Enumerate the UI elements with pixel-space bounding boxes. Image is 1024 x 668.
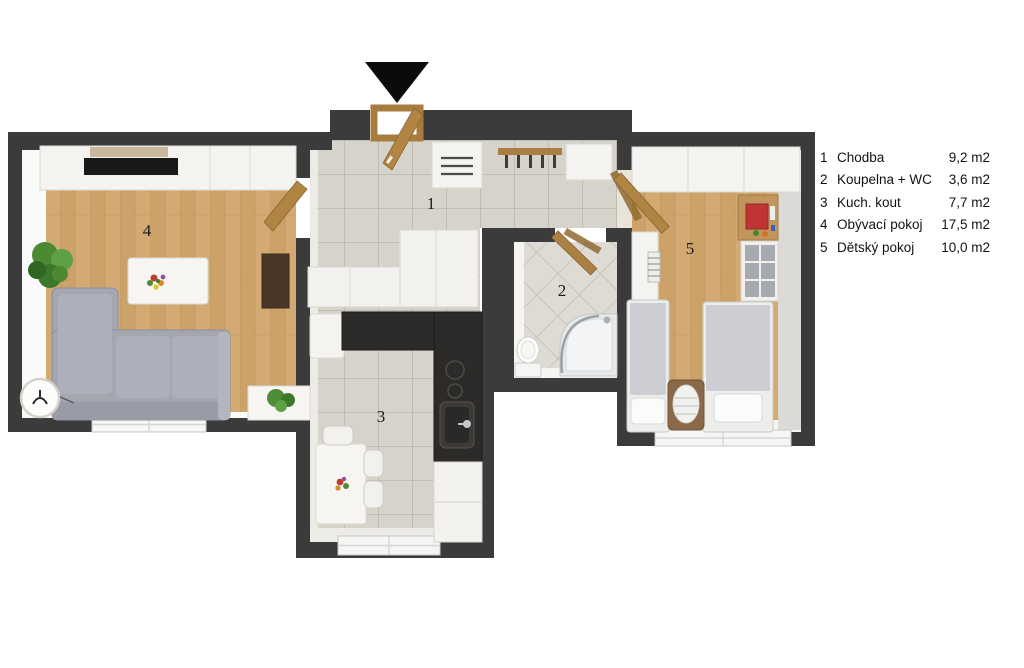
dining-chair <box>323 426 353 445</box>
dining-table <box>316 444 366 524</box>
coffee-table <box>128 258 208 304</box>
shelf-unit <box>741 241 778 301</box>
legend-room-name: Obývací pokoj <box>837 214 938 236</box>
side-table <box>248 386 310 420</box>
legend-room-name: Chodba <box>837 147 938 169</box>
legend: 1 Chodba 9,2 m2 2 Koupelna + WC 3,6 m2 3… <box>820 147 990 259</box>
room-label-3: 3 <box>377 407 386 427</box>
legend-room-area: 9,2 m2 <box>938 147 990 169</box>
desk <box>632 232 660 310</box>
hall-cabinet <box>566 144 612 180</box>
tv-deco <box>90 147 168 157</box>
legend-room-number: 1 <box>820 147 837 169</box>
legend-room-name: Kuch. kout <box>837 192 938 214</box>
legend-row: 4 Obývací pokoj 17,5 m2 <box>820 214 990 236</box>
legend-room-area: 17,5 m2 <box>938 214 990 236</box>
kitchen-cabinet-top <box>310 314 344 358</box>
room-label-2: 2 <box>558 281 567 301</box>
legend-row: 3 Kuch. kout 7,7 m2 <box>820 192 990 214</box>
entrance-arrow-icon <box>365 62 429 103</box>
legend-room-number: 4 <box>820 214 837 236</box>
dining-chair <box>364 450 383 477</box>
legend-row: 2 Koupelna + WC 3,6 m2 <box>820 169 990 191</box>
legend-room-area: 7,7 m2 <box>938 192 990 214</box>
legend-room-number: 3 <box>820 192 837 214</box>
toilet <box>515 337 541 377</box>
wenge-cabinet <box>262 254 289 308</box>
floor-plan-canvas: 1 2 3 4 5 1 Chodba 9,2 m2 2 Koupelna + W… <box>0 0 1024 668</box>
room-label-4: 4 <box>143 221 152 241</box>
dining-chair <box>364 481 383 508</box>
shoe-cabinet <box>432 142 482 188</box>
faucet-icon <box>604 317 611 324</box>
bed <box>703 302 773 432</box>
play-kitchen <box>738 195 778 240</box>
legend-room-number: 2 <box>820 169 837 191</box>
legend-row: 1 Chodba 9,2 m2 <box>820 147 990 169</box>
tv-cabinet <box>40 146 296 190</box>
legend-room-number: 5 <box>820 237 837 259</box>
legend-room-name: Koupelna + WC <box>837 169 938 191</box>
legend-row: 5 Dětský pokoj 10,0 m2 <box>820 237 990 259</box>
bed <box>627 300 669 432</box>
kitchen-window <box>338 536 440 555</box>
children-wardrobe <box>632 147 800 192</box>
floor-plan-drawing <box>0 0 1024 668</box>
room-label-1: 1 <box>427 194 436 214</box>
kitchen-sink <box>440 402 474 448</box>
legend-room-name: Dětský pokoj <box>837 237 938 259</box>
legend-room-area: 10,0 m2 <box>938 237 990 259</box>
radiator <box>648 252 660 282</box>
kitchen-cabinet-bottom <box>434 462 482 542</box>
legend-room-area: 3,6 m2 <box>938 169 990 191</box>
room-label-5: 5 <box>686 239 695 259</box>
kids-chair <box>668 380 704 430</box>
bathtub <box>560 314 617 376</box>
tv-screen <box>84 158 178 175</box>
